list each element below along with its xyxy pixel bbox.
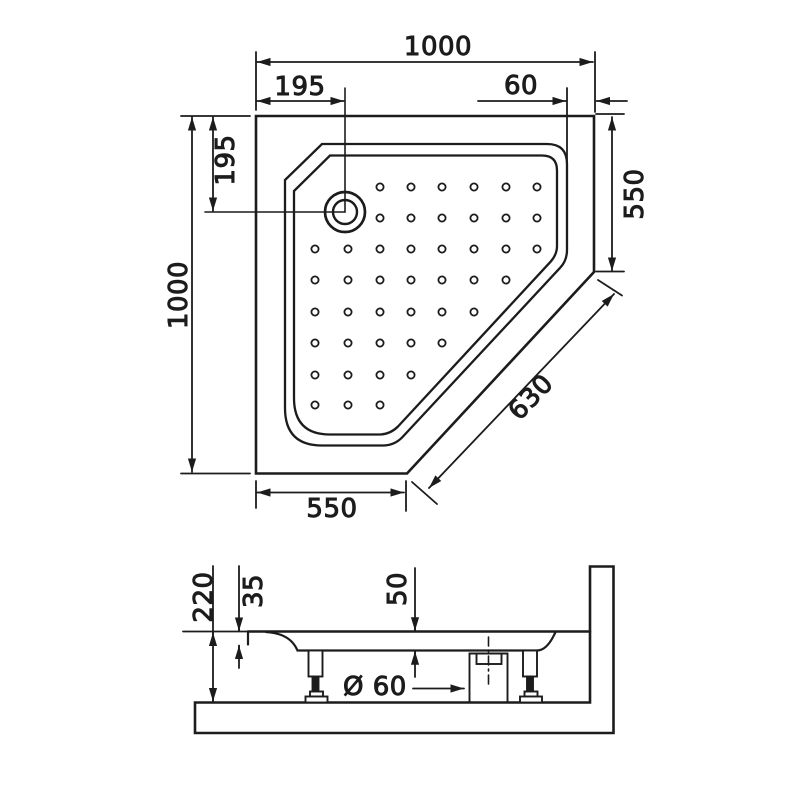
right-leg-body <box>523 651 537 677</box>
anti-slip-dot <box>344 401 351 408</box>
anti-slip-dot <box>502 214 509 221</box>
anti-slip-dot <box>470 276 477 283</box>
anti-slip-dot <box>438 214 445 221</box>
anti-slip-dot <box>344 245 351 252</box>
anti-slip-dot <box>438 308 445 315</box>
shower-tray-technical-drawing-page: 1000 195 60 1000 195 550 630 550 <box>0 0 800 800</box>
anti-slip-dot <box>344 308 351 315</box>
anti-slip-dot <box>533 214 540 221</box>
left-leg-foot-base <box>306 697 328 703</box>
dim-label-side-right: 550 <box>620 168 650 219</box>
dim-label-basin-depth: 50 <box>383 572 413 606</box>
right-leg-thread <box>527 677 533 692</box>
dim-label-rim-thickness: 35 <box>239 574 269 608</box>
anti-slip-dot <box>533 245 540 252</box>
tray-outer-outline <box>256 116 594 474</box>
dim-label-diagonal: 630 <box>503 369 560 427</box>
right-leg-foot-base <box>520 697 542 703</box>
anti-slip-dot <box>470 308 477 315</box>
anti-slip-dot <box>470 214 477 221</box>
anti-slip-dot <box>376 308 383 315</box>
anti-slip-dot <box>502 276 509 283</box>
anti-slip-dot <box>470 183 477 190</box>
anti-slip-dot <box>502 245 509 252</box>
top-view-extension-lines <box>181 52 624 511</box>
anti-slip-dot <box>311 245 318 252</box>
anti-slip-dot <box>311 276 318 283</box>
side-view: 220 35 50 Ø 60 <box>183 566 614 733</box>
anti-slip-dot <box>438 183 445 190</box>
left-leg <box>306 651 328 703</box>
anti-slip-dot <box>376 214 383 221</box>
anti-slip-dot <box>407 214 414 221</box>
left-leg-body <box>309 651 323 677</box>
anti-slip-dot <box>407 371 414 378</box>
anti-slip-dot <box>344 339 351 346</box>
anti-slip-dot <box>376 401 383 408</box>
anti-slip-dot <box>376 245 383 252</box>
top-view: 1000 195 60 1000 195 550 630 550 <box>164 32 650 524</box>
anti-slip-dot <box>470 245 477 252</box>
anti-slip-dot <box>407 183 414 190</box>
anti-slip-dot <box>311 371 318 378</box>
anti-slip-dot <box>502 183 509 190</box>
anti-slip-dot <box>376 371 383 378</box>
drain-trap <box>470 637 508 703</box>
diagonal-tick-bottom <box>412 482 437 504</box>
anti-slip-dot <box>407 245 414 252</box>
anti-slip-dot <box>438 245 445 252</box>
dim-label-total-height: 220 <box>189 571 219 622</box>
anti-slip-dot <box>407 339 414 346</box>
anti-slip-dot <box>438 276 445 283</box>
anti-slip-dot <box>311 401 318 408</box>
dim-label-side-bottom: 550 <box>306 494 357 524</box>
anti-slip-dot <box>407 276 414 283</box>
anti-slip-dot <box>311 339 318 346</box>
diagonal-tick-top <box>598 280 622 296</box>
dim-label-overall-height: 1000 <box>164 261 194 329</box>
anti-slip-dot <box>344 276 351 283</box>
dim-label-drain-diameter: Ø 60 <box>343 672 407 702</box>
dim-label-edge-offset: 60 <box>504 71 538 101</box>
anti-slip-dot <box>344 371 351 378</box>
anti-slip-dot <box>533 183 540 190</box>
left-leg-thread <box>313 677 319 692</box>
anti-slip-dot <box>438 339 445 346</box>
anti-slip-dot <box>376 276 383 283</box>
right-leg <box>520 651 542 703</box>
basin-underside-profile <box>266 632 556 651</box>
dim-label-overall-width: 1000 <box>404 32 472 62</box>
anti-slip-dot-pattern <box>311 183 540 408</box>
dim-label-drain-from-top: 195 <box>211 134 241 185</box>
shower-tray-technical-drawing: 1000 195 60 1000 195 550 630 550 <box>0 0 800 800</box>
anti-slip-dot <box>376 339 383 346</box>
anti-slip-dot <box>407 308 414 315</box>
anti-slip-dot <box>311 308 318 315</box>
dim-label-drain-from-left: 195 <box>274 72 325 102</box>
anti-slip-dot <box>376 183 383 190</box>
